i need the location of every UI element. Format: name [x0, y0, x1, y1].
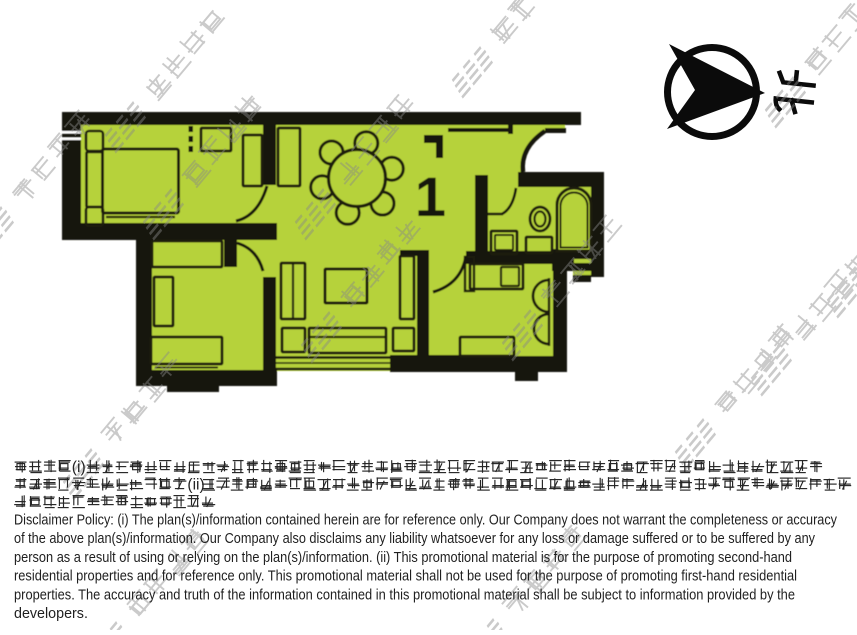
svg-text:properties. The accuracy and t: properties. The accuracy and truth of th… — [14, 587, 795, 603]
svg-text:person as a result of using or: person as a result of using or relying o… — [14, 550, 792, 566]
svg-text:1: 1 — [415, 165, 446, 228]
svg-text:residential properties and for: residential properties and for reference… — [14, 569, 797, 585]
svg-text:(ii): (ii) — [187, 477, 204, 494]
svg-text:of the above plan(s)/informati: of the above plan(s)/information. Our Co… — [14, 531, 816, 547]
svg-text:developers.: developers. — [14, 606, 88, 622]
svg-text:(i): (i) — [72, 459, 86, 476]
svg-text:Disclaimer Policy: (i) The pla: Disclaimer Policy: (i) The plan(s)/infor… — [14, 513, 838, 529]
